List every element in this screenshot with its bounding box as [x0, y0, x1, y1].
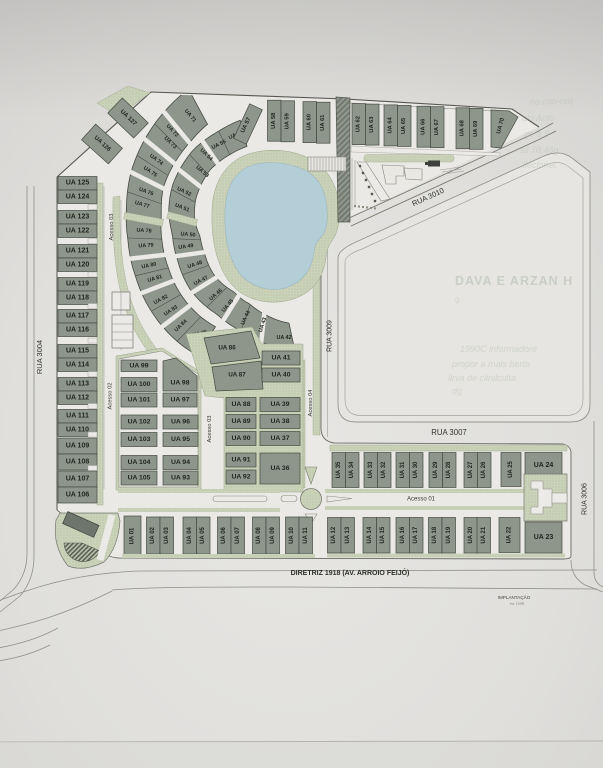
- svg-text:UA 93: UA 93: [171, 475, 190, 482]
- svg-text:UA 62: UA 62: [356, 116, 362, 132]
- svg-text:UA 97: UA 97: [170, 397, 189, 404]
- svg-text:Acesso 04: Acesso 04: [308, 389, 314, 417]
- svg-text:UA 04: UA 04: [187, 526, 193, 543]
- svg-text:UA 69: UA 69: [473, 120, 479, 137]
- svg-text:UA 96: UA 96: [171, 419, 190, 426]
- svg-text:UA 120: UA 120: [66, 261, 90, 268]
- svg-text:Acesso 02: Acesso 02: [108, 382, 114, 409]
- svg-text:UA 78: UA 78: [136, 227, 151, 234]
- svg-text:UA 06: UA 06: [221, 526, 227, 543]
- svg-text:RUA 3007: RUA 3007: [431, 428, 467, 437]
- svg-text:UA 36: UA 36: [270, 465, 289, 472]
- svg-text:UA 108: UA 108: [66, 459, 90, 466]
- svg-text:UA 86: UA 86: [218, 345, 236, 352]
- svg-text:UA 29: UA 29: [433, 461, 439, 478]
- svg-text:UA 05: UA 05: [200, 526, 206, 543]
- svg-text:dg: dg: [452, 386, 462, 396]
- svg-text:UA 95: UA 95: [171, 436, 190, 443]
- svg-text:UA 102: UA 102: [128, 419, 151, 426]
- svg-text:UA 67: UA 67: [434, 119, 440, 135]
- svg-text:UA 113: UA 113: [66, 381, 89, 388]
- svg-text:UA 41: UA 41: [271, 355, 290, 362]
- svg-text:UA 26: UA 26: [481, 461, 487, 478]
- svg-text:UA 09: UA 09: [270, 526, 276, 543]
- svg-text:UA 21: UA 21: [481, 526, 487, 543]
- svg-text:UA 15: UA 15: [380, 526, 386, 543]
- svg-text:UA 20: UA 20: [468, 526, 474, 543]
- svg-text:UA 27: UA 27: [468, 461, 474, 478]
- svg-text:UA 94: UA 94: [171, 459, 190, 466]
- svg-text:UA 66: UA 66: [421, 118, 427, 135]
- svg-text:Acesso 03: Acesso 03: [207, 415, 213, 442]
- svg-text:UA 89: UA 89: [231, 418, 250, 425]
- svg-text:RUA 3004: RUA 3004: [35, 340, 44, 374]
- svg-text:UA 105: UA 105: [128, 475, 151, 482]
- svg-text:UA 103: UA 103: [128, 436, 151, 443]
- svg-text:ileclonel.: ileclonel.: [523, 160, 558, 170]
- svg-text:UA 107: UA 107: [66, 476, 90, 483]
- svg-text:UA 01: UA 01: [130, 527, 136, 544]
- svg-text:UA 68: UA 68: [460, 119, 466, 136]
- svg-text:propor a mais berta: propor a mais berta: [451, 359, 530, 369]
- svg-text:DIRETRIZ 1918 (AV. ARROIO FEIJ: DIRETRIZ 1918 (AV. ARROIO FEIJÓ): [291, 568, 410, 577]
- svg-text:IMPLANTAÇÃO: IMPLANTAÇÃO: [498, 594, 531, 600]
- svg-text:lirva de clinilculta: lirva de clinilculta: [448, 373, 516, 383]
- svg-text:ge a 3: ge a 3: [524, 129, 549, 139]
- svg-text:UA 03: UA 03: [164, 526, 170, 543]
- svg-text:UA 59: UA 59: [285, 112, 291, 129]
- svg-text:UA 100: UA 100: [128, 381, 151, 388]
- svg-text:g.: g.: [455, 295, 462, 304]
- svg-text:UA 40: UA 40: [271, 372, 290, 379]
- svg-text:UA 98: UA 98: [170, 380, 189, 387]
- svg-text:UA 33: UA 33: [368, 461, 374, 478]
- svg-text:UA 101: UA 101: [128, 397, 151, 404]
- svg-text:UA 112: UA 112: [66, 394, 89, 401]
- svg-text:UA 13: UA 13: [345, 526, 351, 543]
- svg-text:UA 121: UA 121: [66, 248, 90, 255]
- svg-text:UA 118: UA 118: [66, 294, 89, 301]
- svg-text:UA 116: UA 116: [66, 326, 89, 333]
- svg-text:UA 90: UA 90: [231, 435, 250, 442]
- svg-text:UA 124: UA 124: [66, 193, 90, 200]
- svg-text:UA 22: UA 22: [507, 526, 513, 543]
- svg-text:UA 122: UA 122: [66, 227, 90, 234]
- svg-text:UA 60: UA 60: [307, 114, 313, 130]
- svg-text:UA 58: UA 58: [271, 112, 277, 129]
- svg-text:UA 115: UA 115: [66, 348, 89, 355]
- svg-text:Acesso 03: Acesso 03: [109, 213, 115, 240]
- svg-text:UA 79: UA 79: [138, 243, 153, 250]
- svg-text:UA 61: UA 61: [320, 114, 326, 131]
- svg-text:UA 14: UA 14: [367, 526, 373, 543]
- svg-text:UA 30: UA 30: [413, 461, 419, 478]
- svg-text:DAVA E ARZAN H: DAVA E ARZAN H: [455, 274, 573, 288]
- svg-text:UA 18: UA 18: [432, 526, 438, 543]
- svg-text:Acesso 01: Acesso 01: [407, 497, 436, 503]
- svg-text:UA 87: UA 87: [228, 372, 246, 379]
- svg-text:no con-req: no con-req: [530, 96, 573, 107]
- svg-text:sil 70,46g: sil 70,46g: [520, 145, 559, 155]
- svg-text:UA 31: UA 31: [400, 461, 406, 478]
- svg-text:UA 106: UA 106: [66, 492, 90, 499]
- svg-text:UA 37: UA 37: [270, 435, 289, 442]
- svg-text:UA 111: UA 111: [66, 413, 89, 420]
- svg-text:UA 16: UA 16: [400, 526, 406, 543]
- svg-text:UA 104: UA 104: [128, 459, 151, 466]
- svg-text:UA 119: UA 119: [66, 281, 89, 288]
- svg-text:UA 125: UA 125: [66, 180, 90, 187]
- svg-text:UA 08: UA 08: [256, 526, 262, 543]
- svg-text:UA 91: UA 91: [231, 457, 250, 464]
- svg-text:1990C informadore: 1990C informadore: [460, 344, 537, 354]
- svg-text:UA 39: UA 39: [270, 401, 289, 408]
- svg-text:UA 10: UA 10: [289, 526, 295, 543]
- svg-text:UA 24: UA 24: [534, 462, 554, 469]
- svg-text:UA 114: UA 114: [66, 361, 89, 368]
- svg-text:UA 12: UA 12: [331, 526, 337, 543]
- svg-text:UA 65: UA 65: [401, 117, 407, 134]
- svg-text:UA 63: UA 63: [369, 116, 375, 133]
- svg-text:UA 99: UA 99: [129, 362, 148, 369]
- svg-text:RUA 3006: RUA 3006: [582, 483, 589, 515]
- svg-text:UA 123: UA 123: [66, 214, 90, 221]
- svg-text:ulo Anto: ulo Anto: [522, 113, 555, 123]
- svg-text:UA 38: UA 38: [270, 418, 289, 425]
- svg-text:UA 64: UA 64: [388, 117, 394, 134]
- svg-text:UA 109: UA 109: [66, 443, 90, 450]
- svg-text:UA 25: UA 25: [508, 460, 514, 477]
- svg-text:esc. 1:1000: esc. 1:1000: [510, 602, 525, 606]
- svg-text:UA 92: UA 92: [231, 474, 250, 481]
- svg-text:UA 35: UA 35: [336, 461, 342, 478]
- svg-text:UA 88: UA 88: [231, 401, 250, 408]
- svg-text:RUA 3009: RUA 3009: [327, 320, 334, 352]
- svg-text:UA 42: UA 42: [276, 335, 291, 341]
- svg-text:UA 34: UA 34: [349, 461, 355, 478]
- svg-text:UA 17: UA 17: [413, 526, 419, 543]
- svg-text:UA 110: UA 110: [66, 426, 89, 433]
- svg-text:UA 117: UA 117: [66, 313, 89, 320]
- svg-text:UA 07: UA 07: [235, 526, 241, 543]
- svg-text:UA 28: UA 28: [446, 461, 452, 478]
- svg-text:UA 11: UA 11: [303, 527, 309, 544]
- svg-text:UA 23: UA 23: [534, 534, 554, 541]
- svg-text:UA 32: UA 32: [381, 461, 387, 478]
- svg-text:UA 02: UA 02: [150, 526, 156, 543]
- svg-text:UA 19: UA 19: [446, 526, 452, 543]
